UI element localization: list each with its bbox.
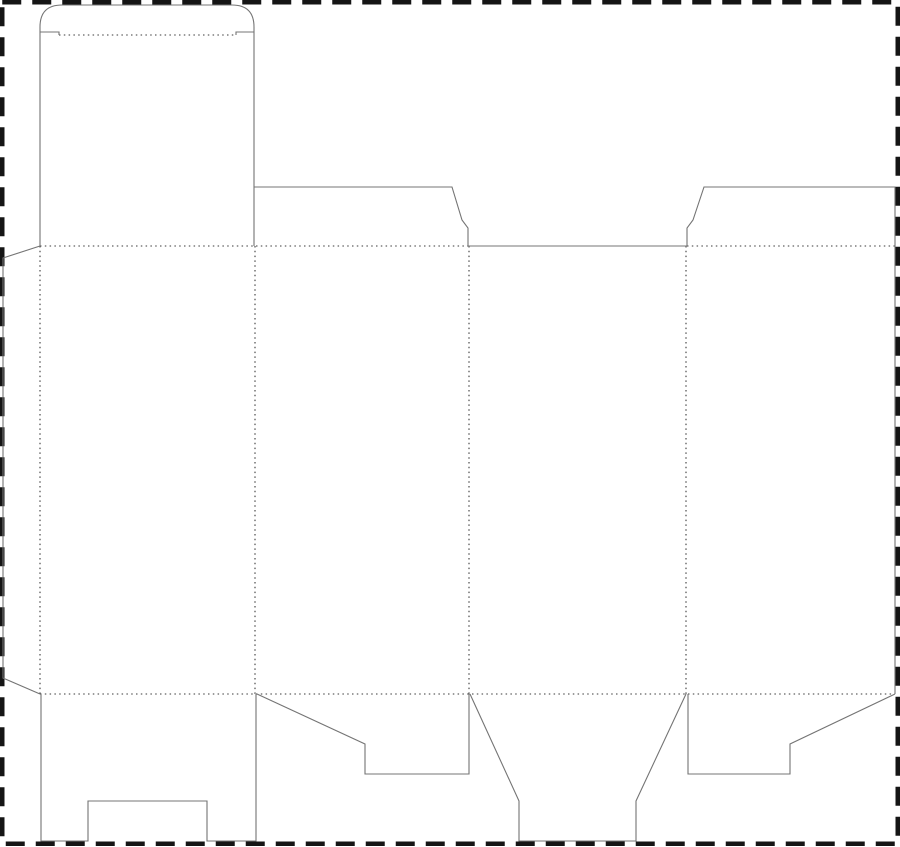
fold-lines-group (40, 35, 895, 694)
bottom-flap-panel2-slant (257, 694, 469, 774)
bottom-flap-panel4-slant (688, 694, 895, 774)
dust-flap-top-left (254, 187, 468, 246)
dieline-sheet (0, 0, 900, 847)
glue-flap-outline (3, 246, 40, 694)
tuck-slit-right (236, 32, 254, 35)
dieline-svg (0, 0, 900, 847)
dust-flap-top-right-and-side-edge (687, 187, 895, 694)
bottom-flap-panel3-lock-tongue (470, 694, 686, 841)
tuck-lid-outline (40, 5, 254, 246)
cut-lines-group (3, 5, 895, 841)
bottom-flap-panel1-notched (41, 694, 256, 841)
tuck-slit-left (40, 32, 59, 35)
sheet-border-group (2, 2, 898, 844)
sheet-cut-boundary (2, 2, 898, 844)
